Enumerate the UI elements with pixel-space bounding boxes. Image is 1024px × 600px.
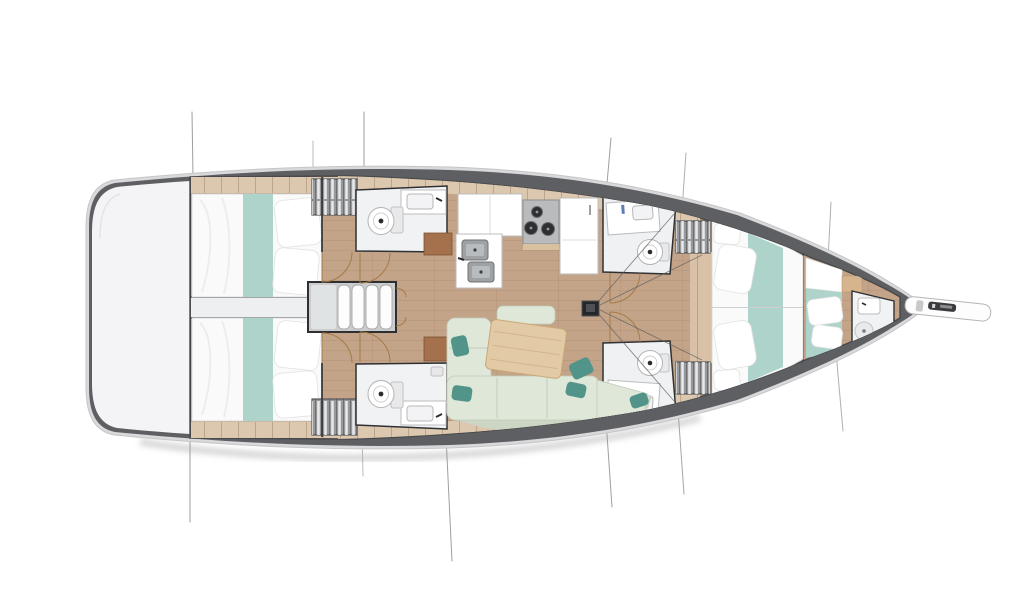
companionway-stairs <box>308 282 406 332</box>
sink-basin <box>407 406 433 421</box>
stove <box>523 200 559 250</box>
step <box>352 285 364 329</box>
galley-sinks <box>456 234 502 288</box>
sink-basin <box>632 205 653 220</box>
hanging-locker-hangers <box>312 399 357 435</box>
head-starboard-mid <box>356 363 447 429</box>
yacht-floor-plan <box>0 0 1024 600</box>
step <box>338 285 350 329</box>
stern-platform <box>92 181 190 434</box>
sideboard-port <box>424 233 452 255</box>
salon-table <box>485 319 567 379</box>
bed-runner <box>243 318 273 421</box>
step <box>380 285 392 329</box>
sink-basin <box>858 298 880 314</box>
engine-compartment <box>190 297 308 318</box>
mast <box>582 301 599 316</box>
toilet <box>368 208 394 235</box>
faucet <box>621 205 625 214</box>
step <box>366 285 378 329</box>
shelf <box>842 276 862 292</box>
hanging-locker-hangers <box>312 179 357 215</box>
sink-basin <box>407 194 433 209</box>
bed-runner <box>243 194 273 297</box>
yacht-floor-plan-page <box>0 0 1024 600</box>
toilet <box>368 381 394 408</box>
shower-drain <box>431 367 443 376</box>
anchor-roller <box>916 300 924 312</box>
bowsprit <box>904 296 991 322</box>
counter-right-fridge <box>560 198 598 274</box>
